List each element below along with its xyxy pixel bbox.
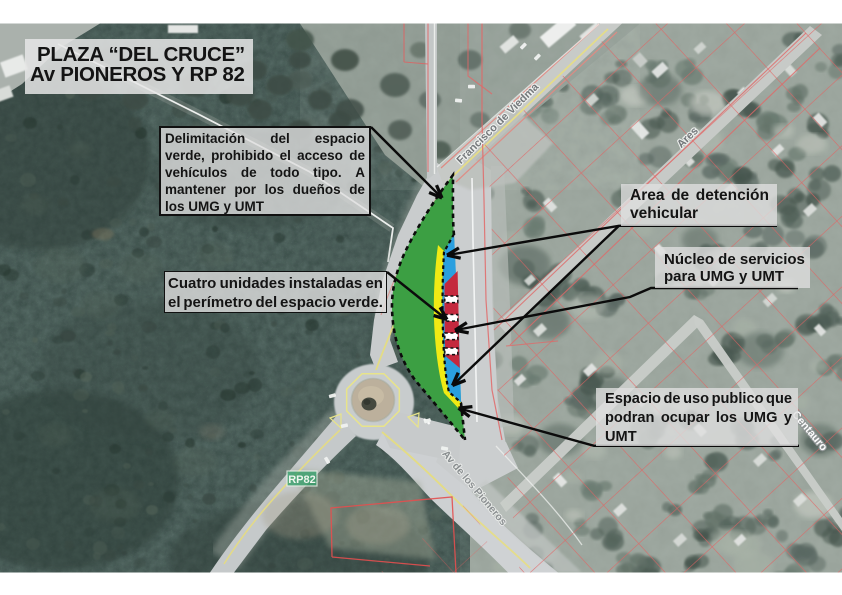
svg-text:RP82: RP82	[288, 474, 316, 486]
